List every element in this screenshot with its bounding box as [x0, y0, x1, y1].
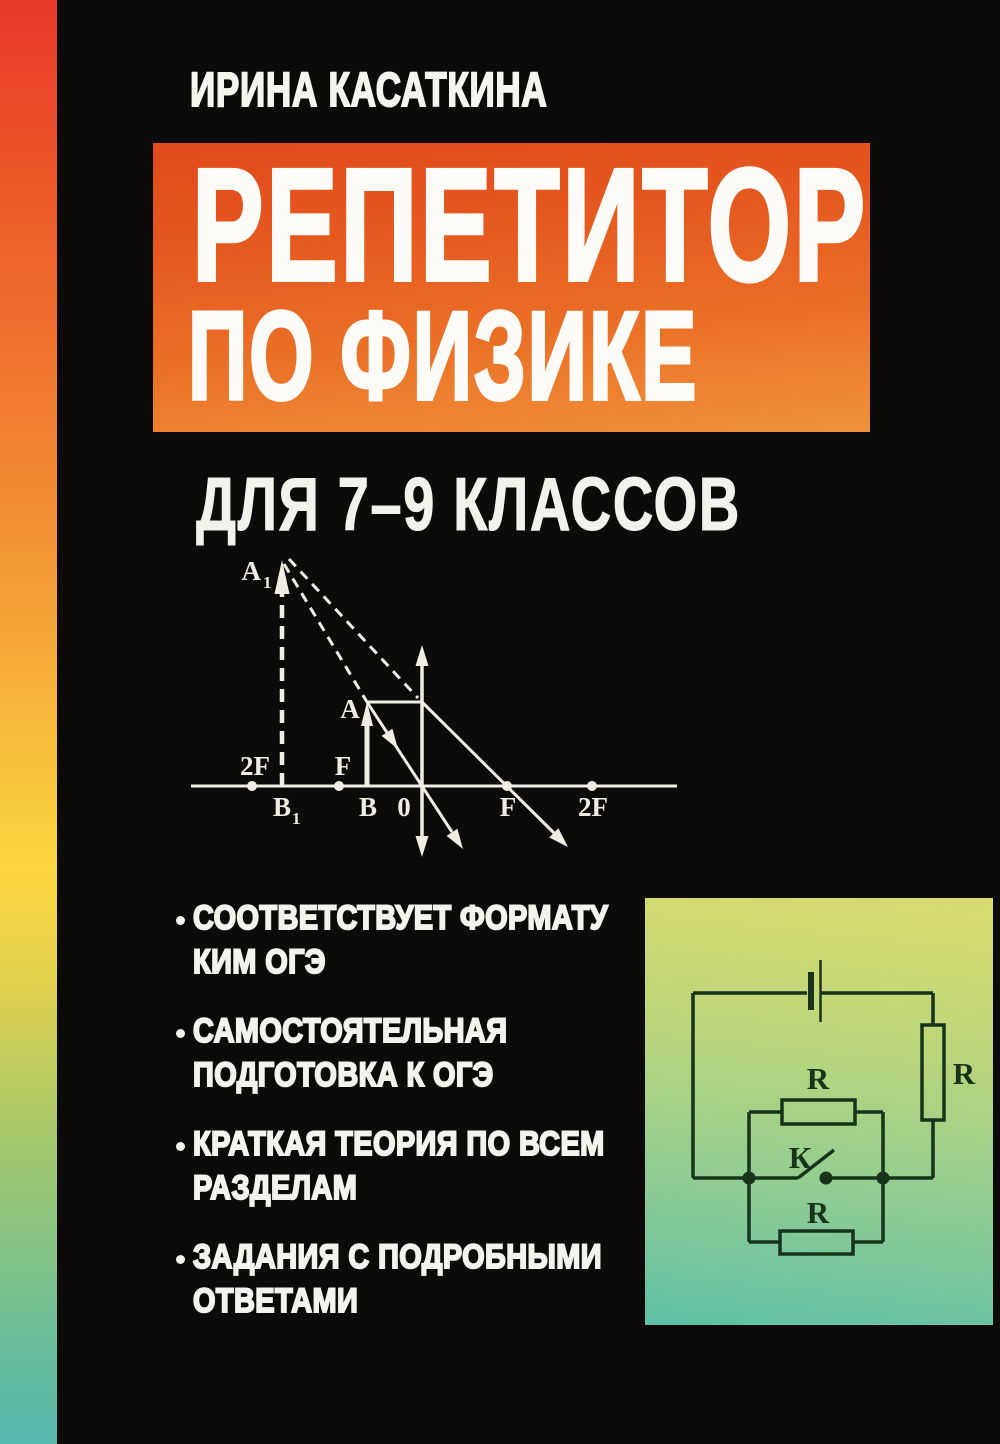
title-box: РЕПЕТИТОР ПО ФИЗИКЕ — [153, 143, 870, 432]
bullet-dot — [176, 1142, 185, 1151]
label-zero: 0 — [397, 792, 411, 822]
resistor-parallel-bottom — [780, 1231, 853, 1254]
bullet-dot — [176, 1029, 185, 1038]
resistor-right — [922, 1025, 944, 1120]
dashed-ray-to-lens — [289, 559, 418, 698]
label-a: A — [340, 694, 360, 724]
author-name: ИРИНА КАСАТКИНА — [190, 67, 547, 115]
label-resistor-top: R — [807, 1061, 830, 1096]
label-f-left: F — [335, 751, 352, 781]
circuit-diagram: R R R К — [645, 898, 993, 1325]
dashed-ray-to-object-tip — [284, 564, 367, 702]
title-line-2: ПО ФИЗИКЕ — [188, 294, 698, 419]
junction-dot-left — [743, 1172, 756, 1185]
feature-line: ЗАДАНИЯ С ПОДРОБНЫМИ — [193, 1236, 587, 1280]
junction-dot-switch — [820, 1172, 833, 1185]
lens-bottom-arrowhead — [416, 836, 429, 857]
feature-line: ОТВЕТАМИ — [193, 1280, 587, 1324]
central-ray-mid-arrowhead — [382, 729, 398, 749]
two-f-left-dot — [247, 781, 257, 791]
feature-line: САМОСТОЯТЕЛЬНАЯ — [193, 1010, 587, 1054]
circuit-panel: R R R К — [645, 898, 993, 1325]
lens-top-arrowhead — [416, 645, 429, 666]
label-f-right: F — [500, 792, 517, 822]
refracted-ray — [422, 702, 554, 833]
rainbow-stripe — [0, 0, 57, 1444]
subtitle-grade-range: ДЛЯ 7–9 КЛАССОВ — [196, 467, 741, 542]
feature-line: СООТВЕТСТВУЕТ ФОРМАТУ — [193, 897, 587, 941]
bullet-dot — [176, 1255, 185, 1264]
feature-item: ЗАДАНИЯ С ПОДРОБНЫМИ ОТВЕТАМИ — [176, 1236, 656, 1323]
feature-item: САМОСТОЯТЕЛЬНАЯ ПОДГОТОВКА К ОГЭ — [176, 1010, 656, 1097]
feature-line: КРАТКАЯ ТЕОРИЯ ПО ВСЕМ — [193, 1123, 587, 1167]
feature-line: ПОДГОТОВКА К ОГЭ — [193, 1054, 587, 1098]
label-2f-left: 2F — [240, 751, 270, 781]
label-2f-right: 2F — [578, 792, 608, 822]
image-arrowhead — [275, 560, 290, 594]
label-a1-sub: 1 — [263, 573, 272, 592]
f-left-dot — [334, 781, 344, 791]
resistor-parallel-top — [782, 1100, 855, 1124]
label-resistor-bottom: R — [807, 1195, 830, 1230]
bullet-dot — [176, 916, 185, 925]
junction-dot-right — [877, 1172, 890, 1185]
label-b1-sub: 1 — [292, 809, 301, 828]
two-f-right-dot — [587, 781, 597, 791]
label-b1: B — [273, 792, 291, 822]
label-switch: К — [789, 1140, 812, 1175]
title-line-1: РЕПЕТИТОР — [192, 145, 868, 305]
label-b: B — [359, 792, 377, 822]
feature-item: КРАТКАЯ ТЕОРИЯ ПО ВСЕМ РАЗДЕЛАМ — [176, 1123, 656, 1210]
central-ray-arrowhead — [447, 829, 463, 849]
lens-ray-diagram: A 1 2F F A B 1 B 0 F 2F — [185, 548, 690, 878]
label-resistor-right: R — [953, 1056, 976, 1091]
feature-line: РАЗДЕЛАМ — [193, 1167, 587, 1211]
label-a1: A — [242, 556, 262, 586]
feature-item: СООТВЕТСТВУЕТ ФОРМАТУ КИМ ОГЭ — [176, 897, 656, 984]
f-right-dot — [502, 781, 512, 791]
book-cover: ИРИНА КАСАТКИНА РЕПЕТИТОР ПО ФИЗИКЕ ДЛЯ … — [0, 0, 1000, 1444]
feature-line: КИМ ОГЭ — [193, 941, 587, 985]
object-arrowhead — [361, 702, 373, 726]
